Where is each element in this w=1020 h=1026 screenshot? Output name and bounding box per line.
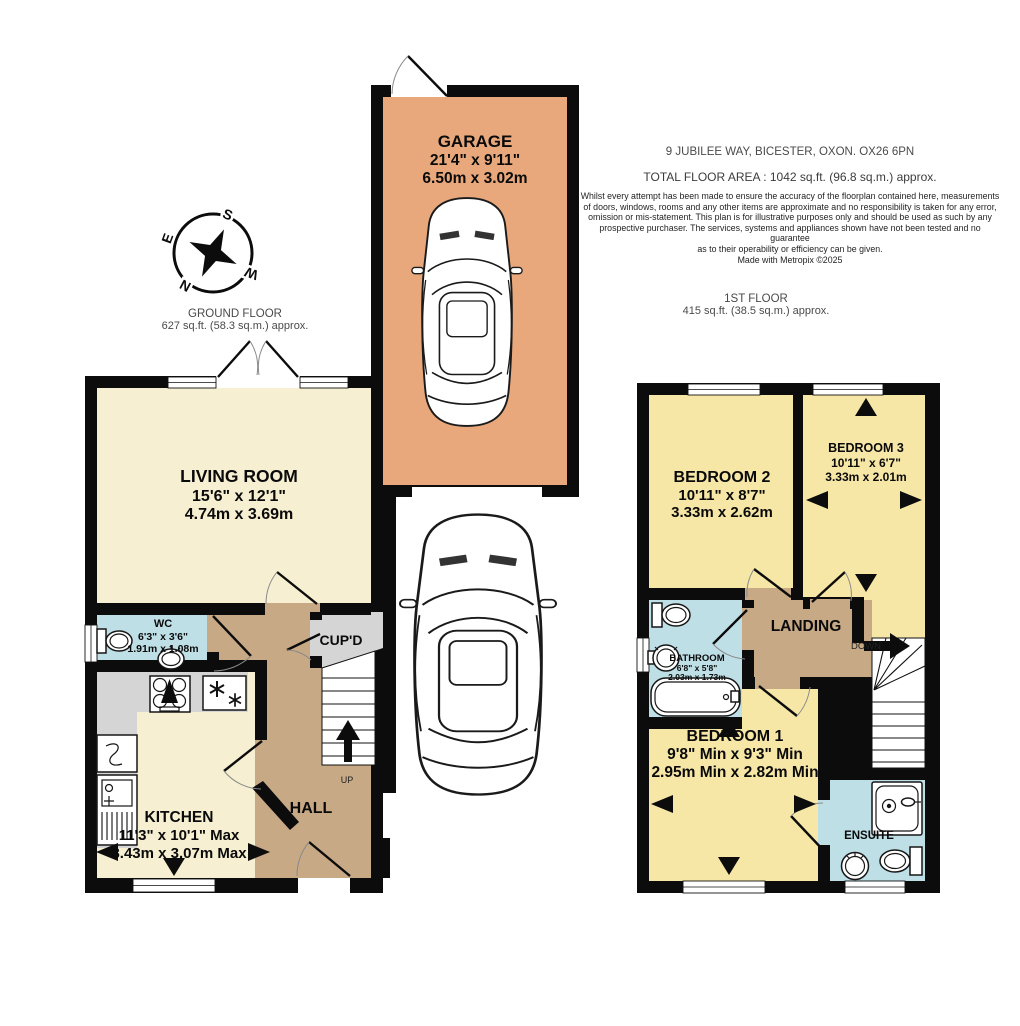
shower-icon (872, 782, 922, 835)
disclaimer-line: as to their operability or efficiency ca… (580, 244, 1000, 255)
kitchen-label: KITCHEN (145, 809, 214, 826)
property-address: 9 JUBILEE WAY, BICESTER, OXON. OX26 6PN (580, 146, 1000, 158)
ground-floor-title: GROUND FLOOR (125, 308, 345, 320)
stairs-down-label: DOWN (851, 641, 881, 652)
compass-icon: S E N W (158, 205, 260, 295)
bedroom1-dims-metric: 2.95m Min x 2.82m Min (651, 764, 818, 781)
bedroom2-label: BEDROOM 2 (674, 469, 771, 486)
garage-dims-metric: 6.50m x 3.02m (422, 170, 527, 187)
living-room-dims-imperial: 15'6" x 12'1" (192, 488, 286, 505)
garage-vehicle-door-opening (412, 487, 542, 497)
first-floor-title: 1ST FLOOR (646, 293, 866, 305)
bathroom-dims-metric: 2.03m x 1.73m (668, 672, 726, 682)
hall-label: HALL (290, 800, 333, 817)
living-room-dims-metric: 4.74m x 3.69m (185, 506, 294, 523)
kitchen-dims-metric: 3.43m x 3.07m Max (111, 845, 247, 862)
wc-dims-metric: 1.91m x 1.08m (127, 643, 198, 655)
credit-line: Made with Metropix ©2025 (580, 255, 1000, 266)
disclaimer: Whilst every attempt has been made to en… (580, 191, 1000, 265)
bedroom2-dims-metric: 3.33m x 2.62m (671, 504, 773, 521)
fridge-freezer-icon (203, 676, 246, 710)
sink-icon (842, 852, 869, 880)
ground-floor-area: 627 sq.ft. (58.3 sq.m.) approx. (125, 320, 345, 332)
bedroom3-dims-metric: 3.33m x 2.01m (825, 470, 906, 484)
bedroom1-label: BEDROOM 1 (687, 728, 784, 745)
first-floor-label: 1ST FLOOR 415 sq.ft. (38.5 sq.m.) approx… (646, 293, 866, 317)
bedroom3-label: BEDROOM 3 (828, 441, 904, 455)
total-floor-area: TOTAL FLOOR AREA : 1042 sq.ft. (96.8 sq.… (580, 170, 1000, 184)
oven-icon (97, 735, 137, 772)
stairs-up-label: UP (341, 775, 354, 785)
bedroom2-dims-imperial: 10'11" x 8'7" (678, 487, 765, 504)
disclaimer-line: prospective purchaser. The services, sys… (580, 223, 1000, 244)
bedroom3-dims-imperial: 10'11" x 6'7" (831, 456, 901, 470)
garage-room: GARAGE 21'4" x 9'11" 6.50m x 3.02m (371, 56, 579, 497)
disclaimer-line: omission or mis-statement. This plan is … (580, 212, 1000, 223)
toilet-icon (880, 847, 922, 875)
plan-header: 9 JUBILEE WAY, BICESTER, OXON. OX26 6PN … (580, 146, 1000, 265)
kitchen-dims-imperial: 11'3" x 10'1" Max (119, 827, 240, 844)
floorplan-canvas: GARAGE 21'4" x 9'11" 6.50m x 3.02m (0, 0, 1020, 1026)
car-icon (400, 515, 556, 795)
compass-east: E (158, 231, 176, 245)
garage-label: GARAGE (438, 132, 513, 151)
landing-label: LANDING (771, 618, 842, 635)
toilet-icon (652, 603, 690, 627)
wc-dims-imperial: 6'3" x 3'6" (138, 631, 188, 643)
stairs-down (872, 638, 925, 768)
hob-icon (150, 676, 190, 712)
cupboard-label: CUP'D (320, 632, 363, 648)
living-room-label: LIVING ROOM (180, 466, 298, 486)
front-door-opening (298, 878, 350, 893)
wc-label: WC (154, 618, 172, 630)
bath-icon (651, 678, 740, 716)
car-icon (412, 198, 522, 426)
first-floor-area: 415 sq.ft. (38.5 sq.m.) approx. (646, 305, 866, 317)
french-door-opening (216, 376, 300, 388)
bedroom1-dims-imperial: 9'8" Min x 9'3" Min (667, 746, 803, 763)
ground-floor-plan: LIVING ROOM 15'6" x 12'1" 4.74m x 3.69m … (85, 341, 396, 893)
disclaimer-line: Whilst every attempt has been made to en… (580, 191, 1000, 202)
compass-west: W (242, 264, 261, 284)
disclaimer-line: of doors, windows, rooms and any other i… (580, 202, 1000, 213)
stairs-up (322, 651, 375, 765)
ensuite-label: ENSUITE (844, 830, 894, 842)
first-floor-plan: BEDROOM 2 10'11" x 8'7" 3.33m x 2.62m BE… (637, 383, 940, 893)
ground-floor-label: GROUND FLOOR 627 sq.ft. (58.3 sq.m.) app… (125, 308, 345, 332)
garage-dims-imperial: 21'4" x 9'11" (430, 152, 520, 169)
